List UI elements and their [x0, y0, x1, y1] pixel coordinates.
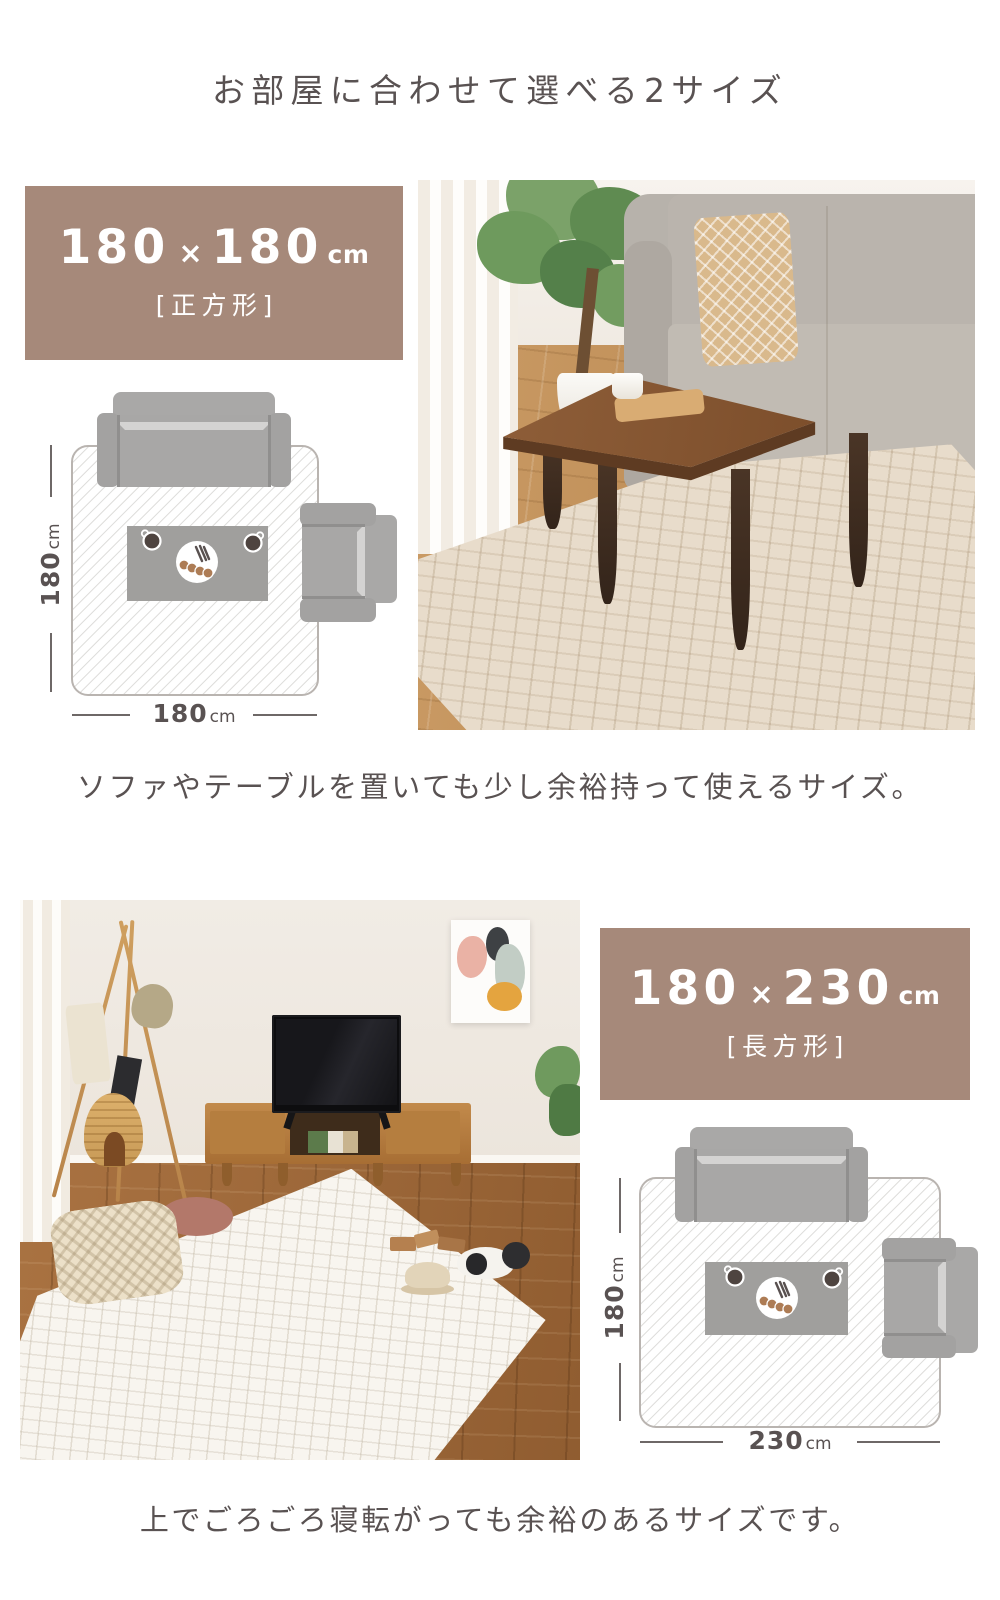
size-badge-rect: 180 × 230 cm [長方形] — [600, 928, 970, 1100]
dimension-bottom-rect: 230cm — [730, 1426, 850, 1456]
table-leg — [731, 469, 750, 651]
caption-rect: 上でごろごろ寝転がっても余裕のあるサイズです。 — [0, 1497, 1000, 1539]
art-shape — [457, 936, 487, 977]
sofa-topview — [97, 392, 291, 487]
mug — [612, 373, 643, 399]
size-unit: cm — [328, 242, 370, 267]
panda-patch — [466, 1253, 488, 1275]
tv-board-shelf — [290, 1112, 380, 1155]
sofa-topview — [675, 1127, 868, 1222]
times-sign: × — [178, 239, 202, 268]
product-size-infographic: お部屋に合わせて選べる2サイズ 180 × 180 cm [正方形] — [0, 0, 1000, 1600]
panda-head — [502, 1242, 530, 1269]
low-table — [418, 180, 975, 730]
size-height: 230 — [783, 965, 894, 1012]
shape-label-rect: [長方形] — [721, 1027, 849, 1063]
table-topview — [127, 526, 268, 601]
table-top — [418, 180, 975, 730]
size-badge-rect-size: 180 × 230 cm — [630, 965, 941, 1012]
toy-block — [390, 1237, 417, 1251]
toy-block — [413, 1229, 439, 1248]
coat-rack — [54, 917, 211, 1208]
table-topview — [705, 1262, 848, 1335]
size-badge-square-size: 180 × 180 cm — [59, 224, 370, 271]
armchair-topview — [300, 503, 397, 622]
table-leg — [598, 455, 617, 604]
tv-board-drawer — [386, 1111, 460, 1154]
tv-screen — [276, 1019, 397, 1105]
tv — [272, 1015, 401, 1113]
size-width: 180 — [630, 965, 741, 1012]
board-leg — [278, 1163, 288, 1185]
baseball-cap — [401, 1262, 454, 1300]
board-leg — [373, 1163, 383, 1185]
tv-board-drawer — [210, 1111, 284, 1154]
panda-plush — [457, 1242, 530, 1281]
board-leg — [222, 1163, 232, 1185]
books — [308, 1131, 358, 1153]
shape-label-square: [正方形] — [150, 286, 278, 322]
plant — [535, 1046, 580, 1141]
board-leg — [451, 1163, 461, 1185]
table-leg — [849, 433, 868, 587]
caption-square: ソファやテーブルを置いても少し余裕持って使えるサイズ。 — [0, 764, 1000, 806]
size-height: 180 — [212, 224, 323, 271]
armchair-topview — [882, 1238, 978, 1358]
cap-dome — [405, 1262, 450, 1289]
dimension-side-rect: 180cm — [600, 1245, 630, 1351]
art-shape — [487, 982, 521, 1011]
knit-cushion — [48, 1197, 186, 1309]
floorplan-square-svg — [25, 385, 405, 735]
plant-leaves — [549, 1084, 580, 1136]
photo-rect-room — [20, 900, 580, 1460]
floorplan-square: 180cm 180cm — [25, 385, 405, 735]
basket-door — [104, 1132, 125, 1166]
dimension-bottom-square: 180cm — [134, 699, 254, 729]
times-sign: × — [749, 980, 773, 1009]
art-print — [451, 920, 529, 1024]
floorplan-rect-svg — [590, 1105, 990, 1465]
size-width: 180 — [59, 224, 170, 271]
floorplan-rect: 180cm 230cm — [590, 1105, 990, 1465]
photo-square-room — [418, 180, 975, 730]
size-badge-square: 180 × 180 cm [正方形] — [25, 186, 403, 360]
page-title: お部屋に合わせて選べる2サイズ — [0, 64, 1000, 112]
dimension-side-square: 180cm — [36, 512, 66, 618]
size-unit: cm — [899, 983, 941, 1008]
